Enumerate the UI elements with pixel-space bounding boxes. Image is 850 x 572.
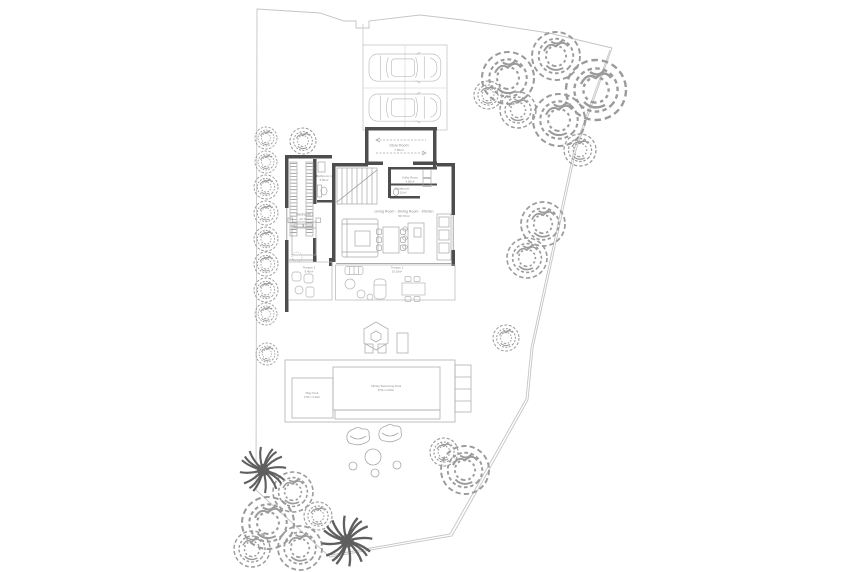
pool-label-play-pool: Play Pool 3.50 x 3.40m [304,391,321,399]
tree-icon [493,325,519,351]
room-label-area: 4.50m² [406,180,415,184]
vegetation [234,32,627,571]
room-label-utility-room: Utility Room 4.50m² [402,176,419,184]
parasol-icon [364,322,388,353]
staircase [337,168,377,204]
room-label-name: Living Room · Dining Room · Kitchen [374,210,433,214]
pool-steps [455,365,471,412]
tree-icon [474,81,502,109]
lounger-single [397,333,408,353]
tree-icon [564,134,596,166]
infinity-pool-overflow [335,410,440,419]
pool-label-infinity-pool: Infinity Swimming Pool 8.50 x 4.00m [371,384,402,392]
tree-icon [254,175,278,199]
palm-tree-icon [322,516,373,567]
room-label-cloakroom: Cloakroom 3.10m² [395,187,410,195]
tree-icon [254,201,278,225]
room-label-terrace-2: Terrace 2 9.40m² [303,266,316,274]
room-label-living-dining-kitchen: Living Room · Dining Room · Kitchen 58.7… [374,210,433,219]
kitchen-island [403,223,424,253]
garden-objects [347,322,408,477]
floor-plan-drawing: Store Room 7.90m² Bathroom 1 6.50m² Util… [0,0,850,572]
tree-icon [256,343,278,365]
pool-label-size: 3.50 x 3.40m [304,395,321,399]
tree-icon [521,202,566,247]
floor-plan-page: Store Room 7.90m² Bathroom 1 6.50m² Util… [0,0,850,572]
tree-icon [441,446,490,495]
room-label-store-room: Store Room 7.90m² [389,144,408,153]
tree-icon [430,438,458,466]
tree-icon [234,531,271,568]
tree-icon [254,227,278,251]
pool-label-size: 8.50 x 4.00m [378,388,395,392]
tree-icon [255,127,277,149]
room-label-bathroom-1: Bathroom 1 6.50m² [316,174,332,182]
room-label-area: 9.40m² [305,270,314,274]
tree-icon [500,92,537,129]
room-label-area: 58.70m² [398,214,409,218]
room-label-area: 23.70m² [299,217,310,221]
parking-guides [363,45,447,130]
room-label-area: 6.50m² [320,178,329,182]
tree-icon [254,252,278,276]
dining-table [377,227,406,253]
tree-icon [278,526,323,571]
stone-lounger-icons [347,425,402,478]
palm-tree-icon [240,447,286,493]
room-label-name: Bedroom 1 [296,213,314,217]
tree-icon [255,151,277,173]
tree-icon [507,238,548,279]
sofa [342,219,378,257]
tree-icon [255,303,277,325]
tree-icon [273,472,314,513]
room-label-area: 19.20m² [392,270,402,274]
kitchen-counter [437,214,451,260]
tree-icon [482,52,535,105]
terrace-2-furniture [292,252,314,297]
room-label-area: 3.10m² [398,191,407,195]
room-label-name: Store Room [389,144,408,148]
room-labels: Store Room 7.90m² Bathroom 1 6.50m² Util… [296,144,433,400]
tree-icon [254,278,278,302]
terrace-1-furniture [345,267,425,302]
tree-icon [290,128,316,154]
parking-area [363,45,447,130]
tree-icon [532,32,581,81]
room-label-area: 7.90m² [394,148,404,152]
room-label-terrace-1: Terrace 1 19.20m² [391,266,404,274]
wardrobe-closets [290,162,313,236]
